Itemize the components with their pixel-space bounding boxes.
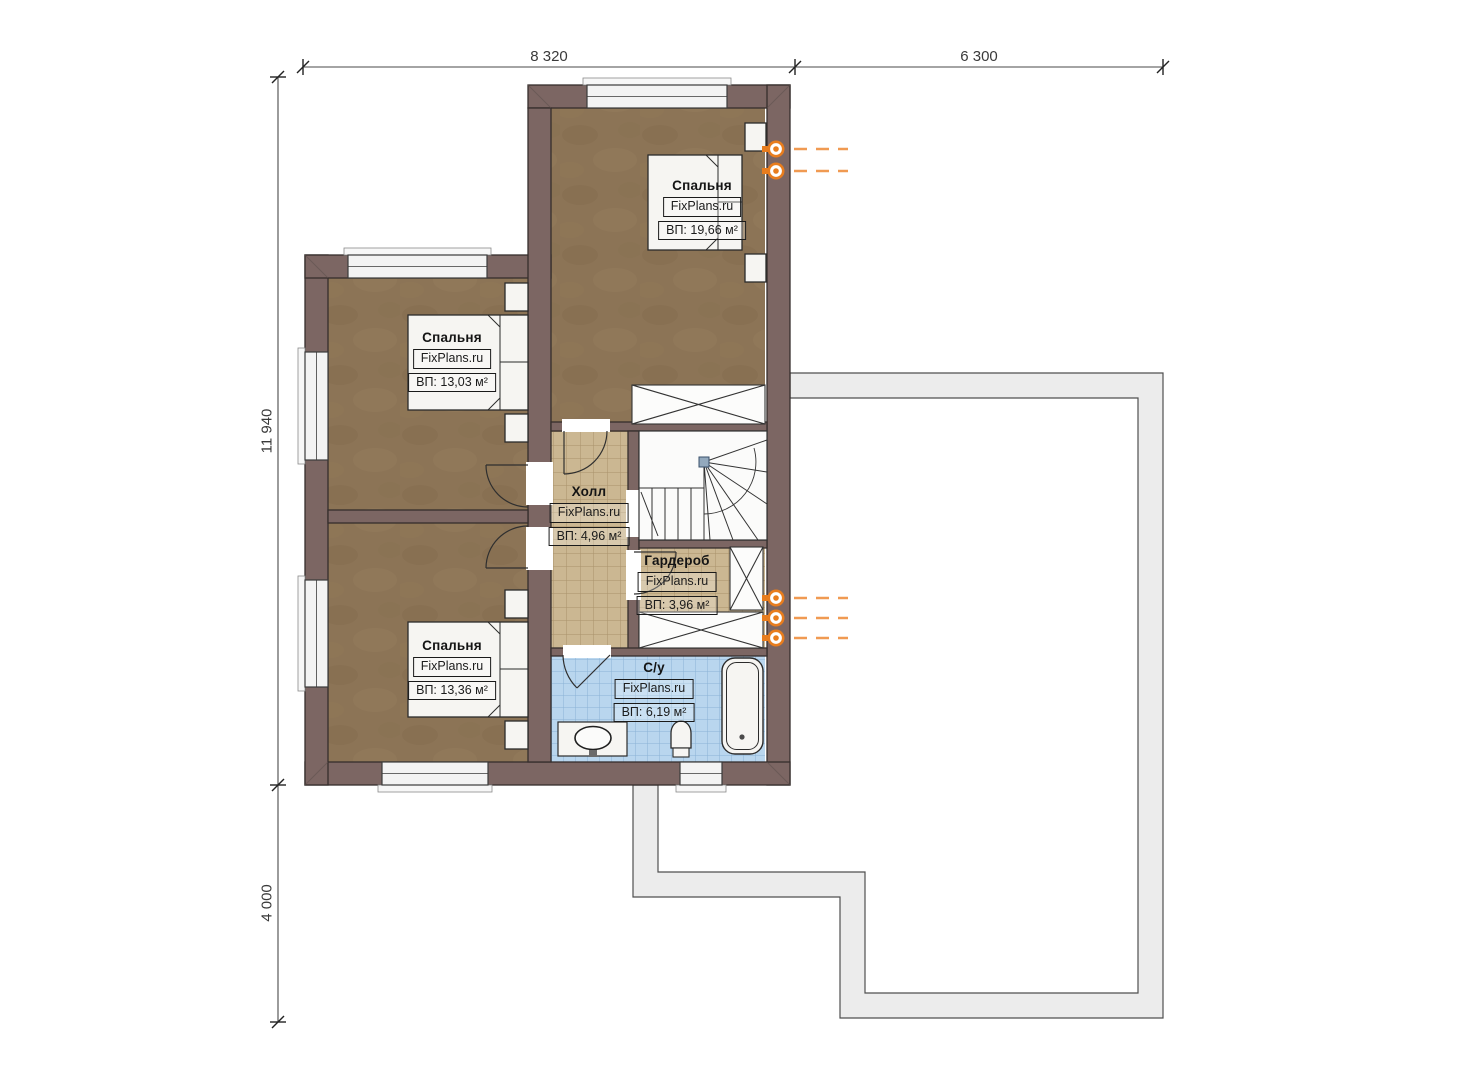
room-name: Спальня: [422, 638, 482, 653]
area-badge: ВП: 13,36 м²: [408, 681, 496, 701]
sconce-icon: [762, 164, 848, 178]
partition-bedrooms: [328, 510, 528, 523]
window-upper-left-top: [344, 248, 491, 278]
closet-wardrobe-right: [730, 547, 763, 610]
area-badge: ВП: 4,96 м²: [549, 527, 630, 547]
wall-left: [305, 255, 328, 785]
wall-spine: [528, 108, 551, 762]
dimension-left-bottom: 4 000: [259, 881, 276, 925]
area-badge: ВП: 3,96 м²: [637, 596, 718, 616]
dimension-left-main: 11 940: [259, 406, 276, 457]
area-badge: ВП: 19,66 м²: [658, 221, 746, 241]
floor-plan-page: 8 320 6 300 11 940 4 000 Спальня FixPlan…: [0, 0, 1473, 1080]
room-name: С/у: [643, 660, 665, 675]
dimension-top-main: 8 320: [527, 48, 571, 65]
nightstand: [505, 590, 528, 618]
nightstand: [505, 283, 528, 311]
window-left-upper: [298, 348, 328, 464]
brand-badge: FixPlans.ru: [663, 197, 742, 217]
brand-badge: FixPlans.ru: [550, 503, 629, 523]
brand-badge: FixPlans.ru: [413, 349, 492, 369]
brand-badge: FixPlans.ru: [638, 572, 717, 592]
closet-wardrobe-bottom: [639, 612, 763, 648]
area-badge: ВП: 13,03 м²: [408, 373, 496, 393]
nightstand: [505, 414, 528, 442]
room-name: Гардероб: [644, 553, 709, 568]
room-label-bedroom-top: Спальня FixPlans.ru ВП: 19,66 м²: [658, 178, 746, 240]
window-bottom-bedroom: [378, 762, 492, 792]
window-bottom-bathroom: [676, 762, 726, 792]
toilet: [671, 721, 691, 757]
brand-badge: FixPlans.ru: [413, 657, 492, 677]
closet-bedroom-top: [632, 385, 765, 424]
stair-hub-marker: [699, 457, 709, 467]
window-top: [583, 78, 731, 108]
sconce-icon: [762, 142, 848, 156]
room-label-bedroom-lower-left: Спальня FixPlans.ru ВП: 13,36 м²: [408, 638, 496, 700]
room-label-wardrobe: Гардероб FixPlans.ru ВП: 3,96 м²: [637, 553, 718, 615]
dimension-top-right: 6 300: [957, 48, 1001, 65]
room-label-bedroom-upper-left: Спальня FixPlans.ru ВП: 13,03 м²: [408, 330, 496, 392]
partition-hall-stairs: [628, 431, 639, 655]
room-name: Спальня: [422, 330, 482, 345]
sconce-icon: [762, 591, 848, 605]
sconce-icon: [762, 611, 848, 625]
area-badge: ВП: 6,19 м²: [614, 703, 695, 723]
staircase: [639, 431, 767, 540]
nightstand: [505, 721, 528, 749]
room-label-hall: Холл FixPlans.ru ВП: 4,96 м²: [549, 484, 630, 546]
room-label-bathroom: С/у FixPlans.ru ВП: 6,19 м²: [614, 660, 695, 722]
sconce-icon: [762, 631, 848, 645]
wall-right: [767, 85, 790, 785]
window-left-lower: [298, 576, 328, 691]
brand-badge: FixPlans.ru: [615, 679, 694, 699]
nightstand: [745, 254, 766, 282]
vanity-sink: [558, 722, 627, 757]
floor-plan-drawing: [0, 0, 1473, 1080]
bathtub: [722, 658, 763, 754]
room-name: Спальня: [672, 178, 732, 193]
room-name: Холл: [572, 484, 607, 499]
